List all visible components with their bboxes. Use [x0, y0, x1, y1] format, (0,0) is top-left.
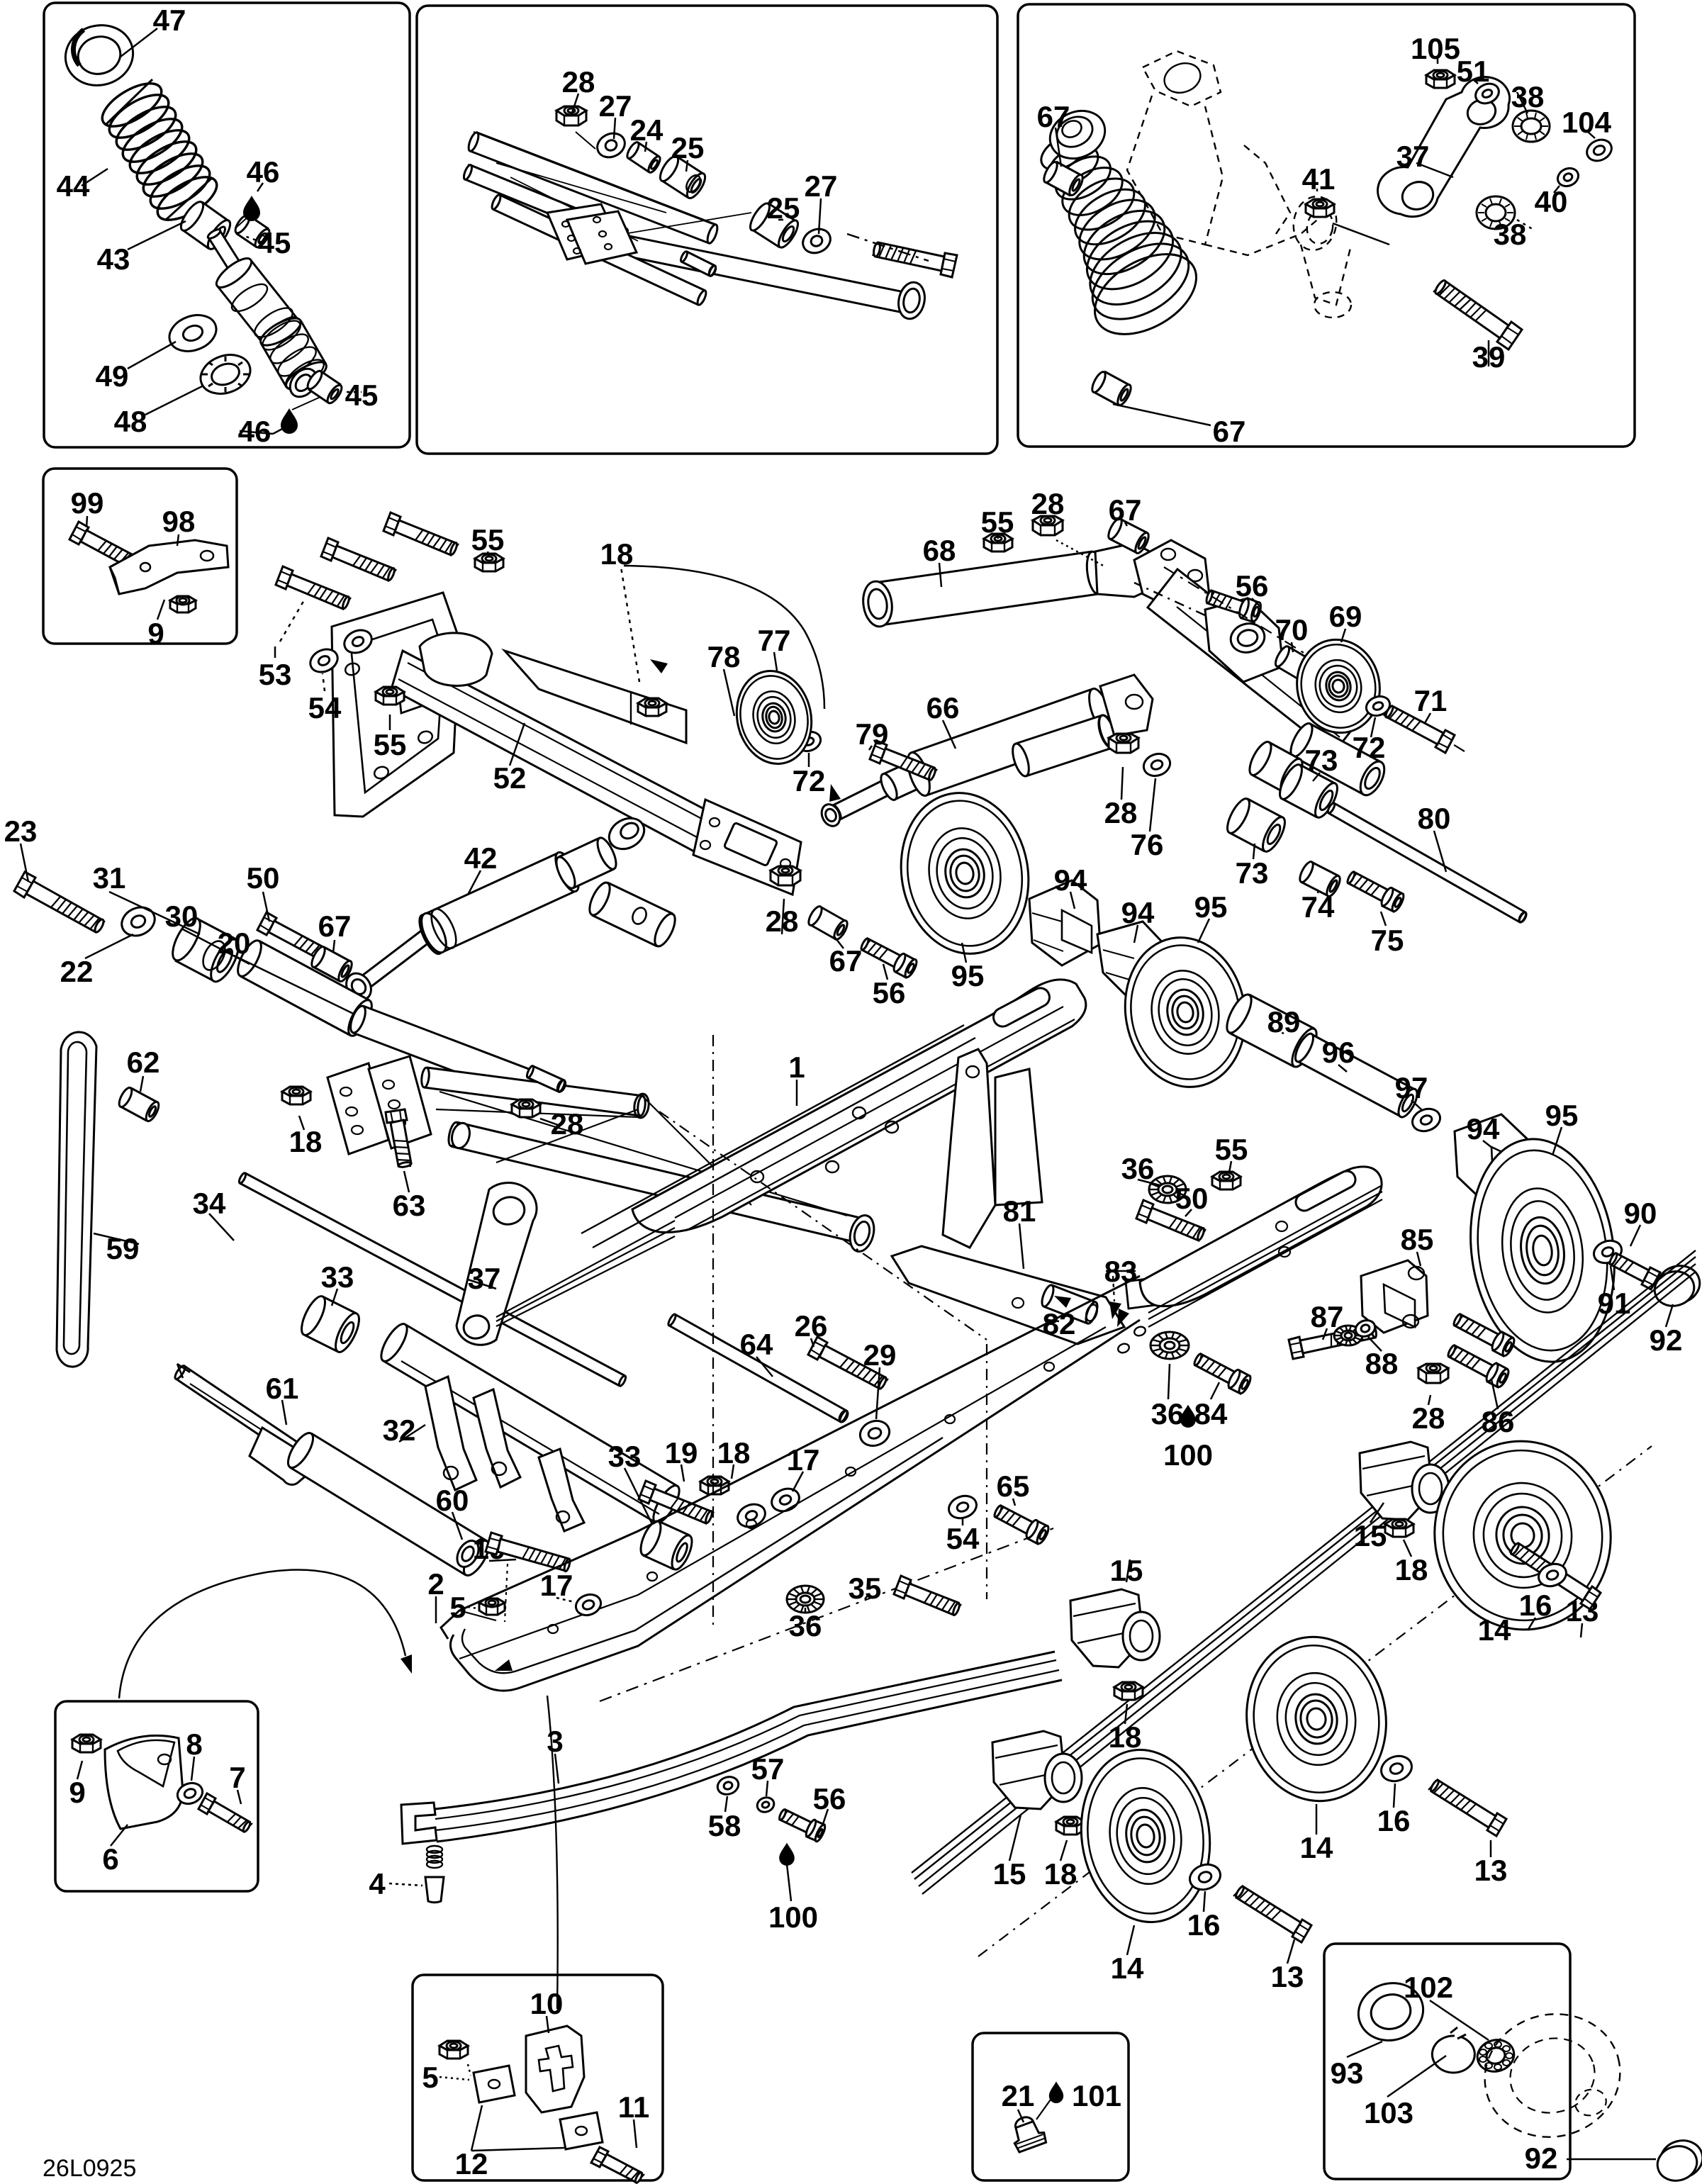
svg-text:51: 51 [1457, 55, 1490, 88]
svg-text:73: 73 [1236, 856, 1269, 890]
svg-text:42: 42 [464, 841, 498, 875]
svg-text:45: 45 [345, 379, 379, 412]
svg-text:78: 78 [707, 640, 741, 673]
svg-text:94: 94 [1467, 1112, 1500, 1146]
svg-text:100: 100 [768, 1900, 818, 1934]
svg-text:28: 28 [1104, 796, 1138, 829]
svg-text:43: 43 [97, 242, 130, 276]
svg-text:46: 46 [247, 155, 280, 189]
svg-text:2: 2 [427, 1567, 444, 1601]
svg-text:28: 28 [562, 65, 595, 99]
svg-text:36: 36 [789, 1609, 822, 1642]
svg-text:69: 69 [1329, 600, 1362, 633]
svg-text:21: 21 [1002, 2079, 1035, 2112]
svg-text:92: 92 [1525, 2141, 1558, 2175]
svg-text:5: 5 [449, 1591, 466, 1624]
svg-text:18: 18 [1109, 1720, 1142, 1754]
svg-text:9: 9 [69, 1776, 85, 1809]
svg-text:39: 39 [1472, 340, 1506, 374]
svg-text:55: 55 [374, 728, 407, 761]
svg-text:75: 75 [1371, 924, 1404, 957]
svg-text:18: 18 [289, 1125, 323, 1158]
svg-text:20: 20 [218, 926, 251, 960]
svg-text:72: 72 [1353, 731, 1386, 764]
svg-text:66: 66 [926, 691, 960, 724]
svg-text:54: 54 [308, 691, 342, 724]
svg-text:29: 29 [863, 1338, 897, 1372]
svg-text:105: 105 [1411, 32, 1460, 65]
svg-text:72: 72 [793, 764, 826, 797]
svg-text:34: 34 [193, 1187, 226, 1220]
svg-text:13: 13 [1271, 1960, 1304, 1993]
svg-text:94: 94 [1121, 896, 1155, 929]
svg-text:89: 89 [1267, 1005, 1301, 1038]
svg-text:94: 94 [1054, 863, 1087, 897]
svg-text:48: 48 [114, 405, 147, 438]
svg-text:18: 18 [1395, 1553, 1428, 1586]
svg-text:77: 77 [758, 624, 791, 657]
svg-text:79: 79 [856, 717, 889, 751]
svg-text:18: 18 [717, 1436, 751, 1469]
svg-text:35: 35 [849, 1572, 882, 1605]
svg-text:55: 55 [471, 523, 505, 556]
svg-text:85: 85 [1401, 1223, 1434, 1256]
svg-text:96: 96 [1322, 1036, 1355, 1069]
svg-text:28: 28 [766, 905, 799, 938]
svg-text:44: 44 [57, 169, 90, 203]
svg-text:95: 95 [1194, 890, 1228, 924]
svg-text:46: 46 [238, 415, 271, 448]
svg-text:32: 32 [383, 1413, 416, 1447]
svg-text:50: 50 [247, 861, 280, 895]
svg-text:63: 63 [393, 1189, 426, 1222]
svg-text:55: 55 [1215, 1133, 1248, 1166]
svg-text:56: 56 [873, 976, 906, 1009]
svg-text:83: 83 [1104, 1255, 1138, 1288]
svg-text:37: 37 [468, 1262, 501, 1295]
svg-text:54: 54 [946, 1522, 980, 1555]
svg-text:60: 60 [436, 1484, 469, 1517]
svg-text:67: 67 [1109, 493, 1142, 527]
svg-text:102: 102 [1404, 1971, 1453, 2004]
svg-text:16: 16 [1187, 1908, 1221, 1942]
svg-text:81: 81 [1003, 1194, 1036, 1228]
svg-text:9: 9 [147, 617, 164, 650]
svg-text:45: 45 [258, 226, 291, 259]
svg-text:103: 103 [1364, 2096, 1413, 2129]
svg-text:52: 52 [493, 761, 527, 795]
svg-text:58: 58 [708, 1809, 741, 1842]
svg-text:33: 33 [321, 1260, 354, 1294]
svg-text:47: 47 [153, 4, 186, 37]
svg-text:70: 70 [1275, 613, 1309, 646]
svg-text:53: 53 [259, 658, 292, 691]
svg-text:64: 64 [740, 1328, 773, 1361]
svg-text:41: 41 [1302, 162, 1336, 196]
svg-text:97: 97 [1395, 1071, 1428, 1104]
svg-text:95: 95 [951, 959, 985, 992]
svg-text:11: 11 [618, 2090, 649, 2124]
svg-text:33: 33 [608, 1440, 642, 1473]
svg-text:55: 55 [981, 505, 1014, 539]
svg-text:61: 61 [266, 1372, 299, 1405]
svg-text:50: 50 [1175, 1182, 1209, 1215]
svg-text:67: 67 [318, 909, 352, 943]
svg-text:5: 5 [422, 2061, 438, 2094]
svg-text:25: 25 [767, 191, 800, 225]
svg-text:36: 36 [1151, 1397, 1185, 1430]
svg-text:71: 71 [1414, 684, 1448, 717]
svg-text:68: 68 [923, 534, 956, 567]
svg-text:16: 16 [1377, 1804, 1411, 1837]
svg-text:22: 22 [60, 955, 94, 988]
svg-text:88: 88 [1365, 1347, 1399, 1380]
svg-text:74: 74 [1301, 890, 1335, 924]
svg-text:27: 27 [805, 169, 838, 203]
svg-text:92: 92 [1650, 1323, 1683, 1357]
svg-text:24: 24 [630, 113, 664, 147]
svg-text:100: 100 [1163, 1438, 1213, 1472]
svg-text:27: 27 [599, 89, 632, 123]
svg-text:67: 67 [1037, 100, 1070, 133]
svg-text:6: 6 [102, 1842, 118, 1876]
svg-text:57: 57 [751, 1752, 785, 1786]
svg-text:14: 14 [1111, 1951, 1144, 1985]
svg-text:36: 36 [1121, 1152, 1155, 1185]
svg-text:1: 1 [788, 1051, 805, 1084]
svg-text:28: 28 [1412, 1401, 1445, 1435]
svg-text:3: 3 [547, 1725, 563, 1758]
svg-text:56: 56 [813, 1782, 846, 1815]
svg-text:14: 14 [1478, 1613, 1511, 1647]
svg-text:14: 14 [1300, 1831, 1333, 1864]
svg-text:37: 37 [1396, 140, 1430, 173]
svg-text:84: 84 [1194, 1397, 1228, 1430]
svg-text:38: 38 [1494, 218, 1527, 251]
svg-text:40: 40 [1535, 185, 1568, 218]
svg-text:98: 98 [162, 505, 196, 538]
svg-text:30: 30 [165, 900, 198, 933]
svg-text:18: 18 [1044, 1857, 1077, 1891]
svg-text:28: 28 [551, 1107, 584, 1141]
svg-text:76: 76 [1131, 828, 1164, 861]
svg-text:17: 17 [540, 1569, 573, 1602]
svg-text:62: 62 [127, 1046, 160, 1079]
svg-text:73: 73 [1305, 744, 1338, 777]
svg-text:16: 16 [1519, 1589, 1552, 1622]
svg-text:80: 80 [1418, 802, 1451, 835]
svg-text:104: 104 [1562, 106, 1612, 139]
svg-text:15: 15 [1354, 1519, 1387, 1552]
svg-text:19: 19 [665, 1436, 698, 1469]
svg-text:4: 4 [369, 1867, 386, 1900]
svg-text:56: 56 [1236, 569, 1269, 603]
svg-text:7: 7 [229, 1761, 245, 1794]
svg-text:10: 10 [530, 1987, 564, 2020]
svg-text:93: 93 [1331, 2056, 1364, 2090]
svg-text:67: 67 [829, 944, 863, 978]
svg-text:38: 38 [1511, 80, 1545, 113]
svg-text:67: 67 [1213, 415, 1246, 448]
svg-text:13: 13 [1474, 1854, 1508, 1887]
svg-text:15: 15 [1110, 1554, 1143, 1587]
svg-text:26: 26 [795, 1309, 828, 1343]
svg-text:26L0925: 26L0925 [43, 2155, 136, 2182]
svg-text:23: 23 [4, 814, 38, 848]
svg-text:101: 101 [1072, 2079, 1121, 2112]
svg-text:95: 95 [1545, 1099, 1579, 1132]
svg-text:90: 90 [1624, 1197, 1657, 1230]
svg-text:65: 65 [997, 1469, 1030, 1503]
svg-text:15: 15 [993, 1857, 1026, 1891]
svg-text:99: 99 [71, 486, 104, 520]
svg-text:8: 8 [186, 1727, 202, 1761]
svg-text:59: 59 [106, 1232, 140, 1265]
svg-text:31: 31 [93, 861, 126, 895]
svg-text:25: 25 [671, 131, 705, 164]
svg-text:49: 49 [96, 359, 129, 393]
svg-text:28: 28 [1031, 487, 1065, 520]
svg-text:12: 12 [455, 2147, 488, 2180]
